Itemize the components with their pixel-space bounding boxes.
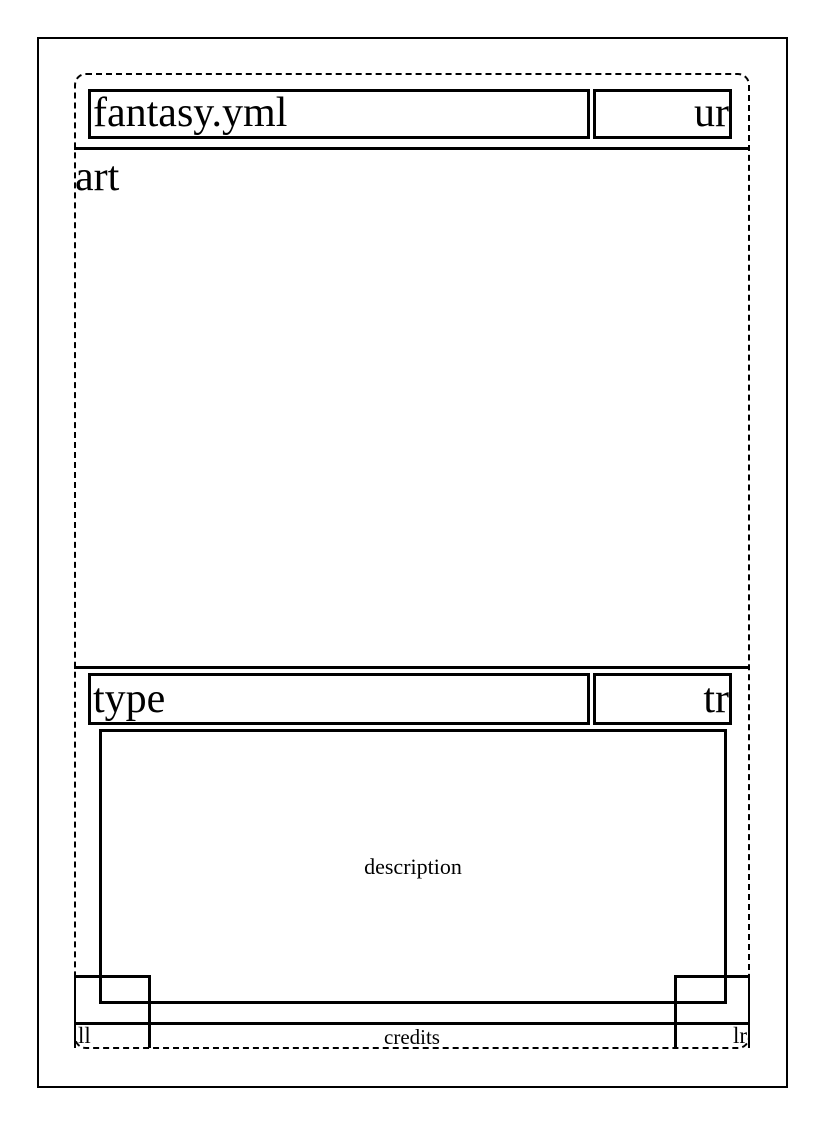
upper-right-zone: ur bbox=[593, 89, 732, 139]
type-right-zone: tr bbox=[593, 673, 732, 725]
art-zone-label: art bbox=[75, 156, 119, 198]
credits-zone-label: credits bbox=[384, 1027, 440, 1048]
art-zone: art bbox=[74, 147, 750, 669]
description-zone-label: description bbox=[364, 856, 462, 878]
credits-zone: credits bbox=[74, 1022, 750, 1049]
type-right-zone-label: tr bbox=[703, 678, 729, 720]
title-zone: fantasy.yml bbox=[88, 89, 590, 139]
lower-right-zone-label: lr bbox=[733, 1024, 747, 1047]
upper-right-zone-label: ur bbox=[694, 92, 729, 134]
title-zone-label: fantasy.yml bbox=[93, 92, 287, 134]
type-zone-label: type bbox=[93, 678, 165, 720]
type-zone: type bbox=[88, 673, 590, 725]
lower-right-zone: lr bbox=[674, 975, 750, 1048]
description-zone: description bbox=[99, 729, 727, 1004]
layout-preview-page: fantasy.yml ur art type tr description l… bbox=[0, 0, 825, 1125]
